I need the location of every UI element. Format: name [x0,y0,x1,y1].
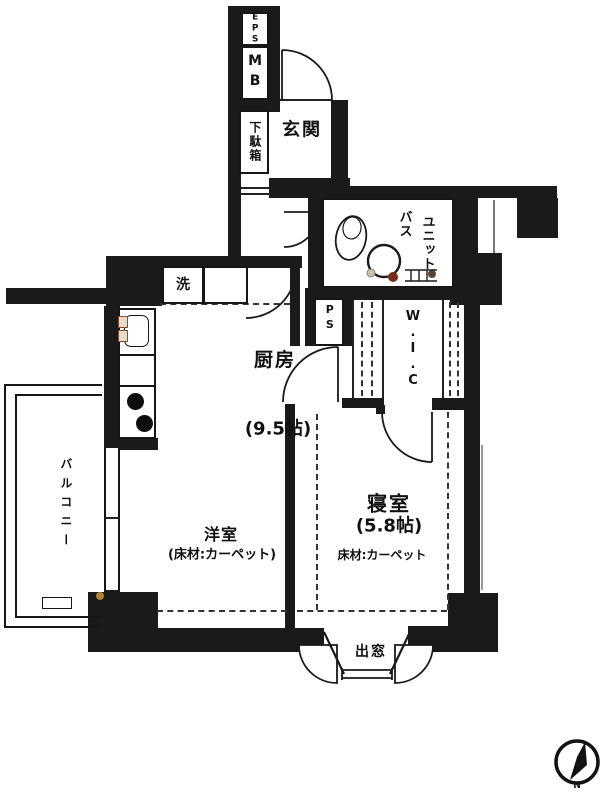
western-room-bottom-dashed [157,610,287,612]
wall [106,256,162,306]
unit-bath-label-left: バス [396,210,411,238]
compass-north-label: N [573,781,581,791]
meter-box-label: MB [247,53,263,93]
floorplan: EPS MB 下駄箱 玄関 バス ユニット 洗 PS W.I.C 厨房 (9.5… [0,0,615,800]
wall [6,288,106,304]
bedroom-door-arc [382,412,432,462]
closet-door-dashed [449,302,451,396]
genkan-step-line [241,187,271,189]
closet-door-dashed [371,302,373,396]
faucet-fixture [118,330,128,342]
wall [517,198,558,238]
wall [464,300,480,410]
genkan-step-line [241,193,271,195]
balcony-hatch [42,597,72,609]
window-line [481,445,483,590]
compass-needle [570,742,587,780]
closet-frame-line [442,300,444,398]
wic-label: W.I.C [405,309,420,389]
faucet-fixture [118,316,128,328]
bedroom-label: 寝室 [367,493,411,516]
door-hinge-dot [376,405,385,414]
wall [464,410,480,598]
bedroom-bottom-dashed [297,610,447,612]
wall [432,398,472,410]
wall [269,186,557,198]
kitchen-counter [118,354,156,387]
western-room-floor-label: (床材:カーペット) [168,549,276,564]
genkan-label: 玄関 [282,121,322,142]
bedroom-size-label: (5.8帖) [356,517,422,538]
wall [454,198,478,255]
washer-label: 洗 [176,277,190,293]
bedroom-floor-label: 床材:カーペット [338,549,427,563]
closet-frame-line [352,300,354,398]
bedroom-left-dashed [316,414,318,610]
pipe-space-label: PS [323,303,336,333]
compass-circle [556,741,598,783]
kitchen-label: 厨房 [254,350,296,372]
balcony-window-sash [104,448,120,590]
genkan-top-line [280,99,331,101]
closet-door-dashed [361,302,363,396]
eps-label: EPS [250,13,260,46]
bedroom-right-dashed [447,412,449,610]
closet-frame-line [382,300,384,398]
entrance-door-arc [282,50,332,100]
kitchen-size-label: (9.5帖) [245,420,311,441]
balcony-window-mullion [104,517,120,519]
bay-window-sill [342,668,392,680]
appliance-box [203,266,248,304]
unit-bath-label-right: ユニット [419,215,434,271]
stove-burner [136,415,153,432]
closet-door-dashed [457,302,459,396]
balcony-label: バルコニー [58,458,72,553]
stove-burner [127,393,144,410]
wall [308,198,322,290]
shoe-cabinet-label: 下駄箱 [247,121,261,163]
western-room-label: 洋室 [204,526,238,544]
wall [448,593,498,652]
wall [290,258,300,346]
bay-window-label: 出窓 [355,644,387,660]
hall-kitchen-door-arc [246,268,296,318]
window-line [493,200,495,253]
